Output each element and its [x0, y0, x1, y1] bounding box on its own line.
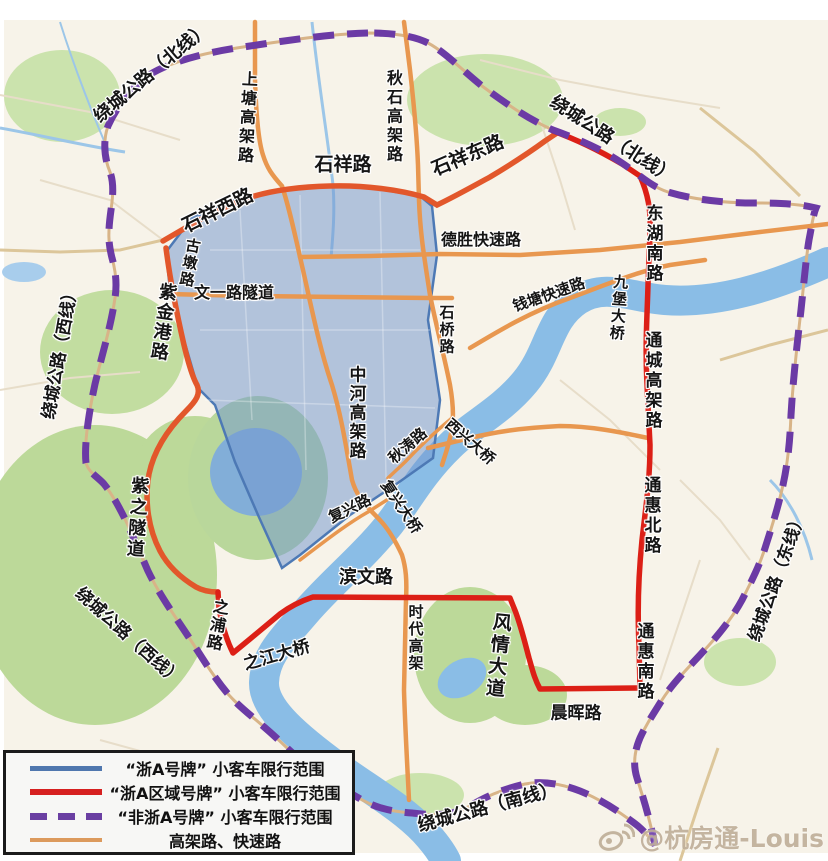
road-label-desheng: 德胜快速路 [441, 232, 521, 248]
legend-swatch-blue-line [30, 766, 102, 771]
road-label-tongcheng: 通城高架路 [643, 331, 660, 431]
road-label-donghu: 东湖南路 [644, 204, 661, 284]
road-label-zhonghe: 中河高架路 [347, 366, 364, 461]
road-label-tonghui-n: 通惠北路 [642, 476, 659, 556]
road-label-shangtang: 上塘高架路 [236, 70, 257, 166]
road-label-zizhi: 紫之隧道 [124, 475, 148, 560]
legend-swatch-orange-line [30, 838, 102, 842]
road-label-binwen: 滨文路 [339, 569, 393, 587]
legend-label: 高架路、快速路 [102, 828, 348, 852]
weibo-icon [597, 821, 635, 853]
road-label-jiubao: 九堡大桥 [608, 274, 628, 343]
legend-label: “非浙A号牌” 小客车限行范围 [102, 804, 348, 828]
legend-row-purple: “非浙A号牌” 小客车限行范围 [10, 804, 348, 828]
road-label-shiqiao: 石桥路 [439, 305, 454, 356]
watermark: @杭房通-Louis [597, 819, 824, 855]
road-label-shixiang: 石祥路 [314, 156, 371, 175]
legend-row-blue: “浙A号牌” 小客车限行范围 [10, 756, 348, 780]
legend-row-orange: 高架路、快速路 [10, 828, 348, 852]
road-label-qiushi: 秋石高架路 [385, 70, 401, 165]
legend-row-red: “浙A区域号牌” 小客车限行范围 [10, 780, 348, 804]
map-screenshot: 绕城公路（北线） 绕城公路（北线） 绕城公路（西线） 绕城公路（西线） 绕城公路… [0, 0, 828, 861]
road-label-wenyi: 文一路隧道 [194, 285, 274, 301]
watermark-text: @杭房通-Louis [639, 819, 824, 855]
road-label-shidai: 时代高架 [408, 604, 423, 672]
legend-label: “浙A区域号牌” 小客车限行范围 [102, 780, 348, 804]
legend-label: “浙A号牌” 小客车限行范围 [102, 756, 348, 780]
legend: “浙A号牌” 小客车限行范围 “浙A区域号牌” 小客车限行范围 “非浙A号牌” … [3, 750, 355, 855]
road-label-tonghui-s: 通惠南路 [635, 622, 652, 702]
legend-swatch-red-line [30, 789, 102, 795]
road-label-chenhui: 晨晖路 [551, 706, 602, 723]
legend-swatch-purple-dashed-line [30, 813, 102, 820]
